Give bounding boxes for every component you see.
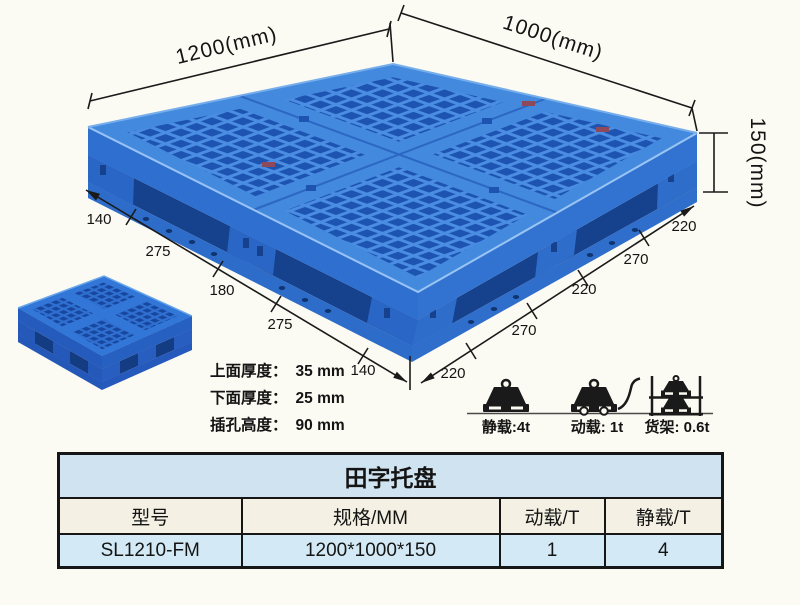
- spec-value: 35 mm: [296, 363, 345, 380]
- spec-top-thickness: 上面厚度：35 mm: [210, 358, 345, 385]
- header-dynamic-load: 动载/T: [500, 498, 605, 534]
- dim-left-2: 180: [209, 282, 234, 299]
- rack-load-shelf-icon: [649, 376, 703, 416]
- cell-dynamic-load: 1: [500, 534, 605, 568]
- dim-right-3: 270: [511, 322, 536, 339]
- spec-slot-height: 插孔高度：90 mm: [210, 412, 345, 439]
- dim-right-0: 220: [671, 218, 696, 235]
- dim-right-1: 270: [623, 251, 648, 268]
- thumbnail-pallet-illustration: [18, 276, 192, 390]
- dim-left-4: 140: [350, 362, 375, 379]
- dim-right-4: 220: [440, 365, 465, 382]
- rack-load-caption: 货架: 0.6t: [644, 418, 709, 436]
- table-title: 田字托盘: [59, 454, 723, 499]
- spec-label: 下面厚度：: [210, 390, 288, 407]
- dim-left-3: 275: [267, 316, 292, 333]
- spec-value: 25 mm: [296, 390, 345, 407]
- thickness-specs: 上面厚度：35 mm 下面厚度：25 mm 插孔高度：90 mm: [210, 358, 345, 439]
- dimension-label-width: 1200(mm): [173, 22, 279, 69]
- header-model: 型号: [59, 498, 242, 534]
- static-load-caption: 静载:4t: [482, 418, 530, 436]
- header-static-load: 静载/T: [605, 498, 723, 534]
- cell-model: SL1210-FM: [59, 534, 242, 568]
- spec-label: 插孔高度：: [210, 417, 288, 434]
- header-spec-mm: 规格/MM: [242, 498, 500, 534]
- spec-bottom-thickness: 下面厚度：25 mm: [210, 385, 345, 412]
- table-header-row: 型号 规格/MM 动载/T 静载/T: [59, 498, 723, 534]
- spec-label: 上面厚度：: [210, 363, 288, 380]
- dimension-label-height: 150(mm): [746, 117, 769, 208]
- spec-value: 90 mm: [296, 417, 345, 434]
- dimension-label-depth: 1000(mm): [500, 11, 606, 65]
- dynamic-load-trolley-icon: [571, 379, 640, 415]
- product-diagram: 1200(mm) 1000(mm) 150(mm) 140 275 180 27…: [0, 0, 800, 600]
- spec-table: 田字托盘 型号 规格/MM 动载/T 静载/T SL1210-FM 1200*1…: [57, 452, 724, 569]
- dim-right-2: 220: [571, 281, 596, 298]
- dynamic-load-caption: 动载: 1t: [571, 418, 624, 436]
- load-rating-icons: 静载:4t 动载: 1t 货架: 0.6t: [467, 376, 713, 436]
- static-load-weight-icon: [483, 380, 529, 412]
- dim-left-1: 275: [145, 243, 170, 260]
- table-data-row: SL1210-FM 1200*1000*150 1 4: [59, 534, 723, 568]
- table-title-row: 田字托盘: [59, 454, 723, 499]
- cell-static-load: 4: [605, 534, 723, 568]
- dim-left-0: 140: [86, 211, 111, 228]
- cell-spec-mm: 1200*1000*150: [242, 534, 500, 568]
